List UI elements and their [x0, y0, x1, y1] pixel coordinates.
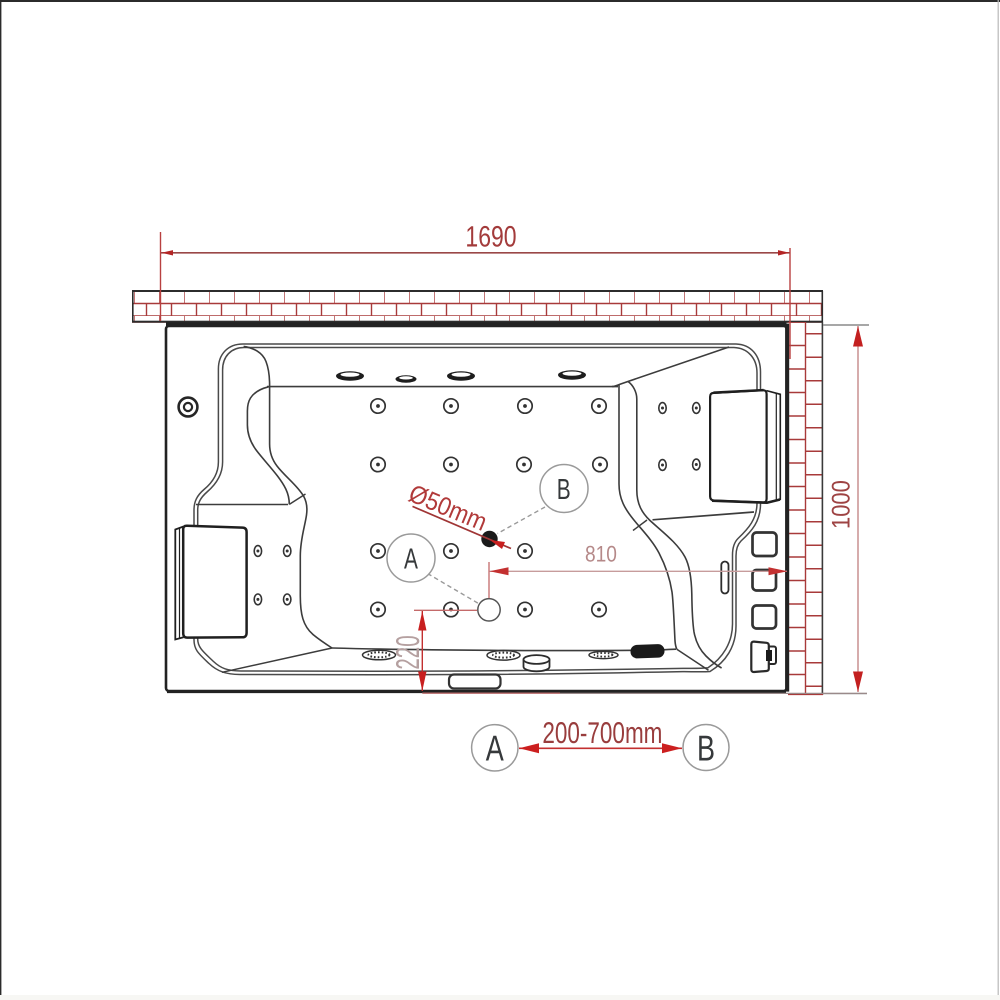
svg-text:1690: 1690	[465, 221, 516, 254]
svg-text:B: B	[697, 727, 715, 768]
svg-text:A: A	[404, 544, 418, 576]
svg-text:810: 810	[585, 542, 617, 567]
svg-text:1000: 1000	[828, 480, 856, 529]
svg-text:220: 220	[389, 635, 426, 669]
svg-text:200-700mm: 200-700mm	[542, 717, 662, 750]
svg-text:B: B	[557, 474, 571, 506]
svg-text:A: A	[486, 728, 504, 769]
